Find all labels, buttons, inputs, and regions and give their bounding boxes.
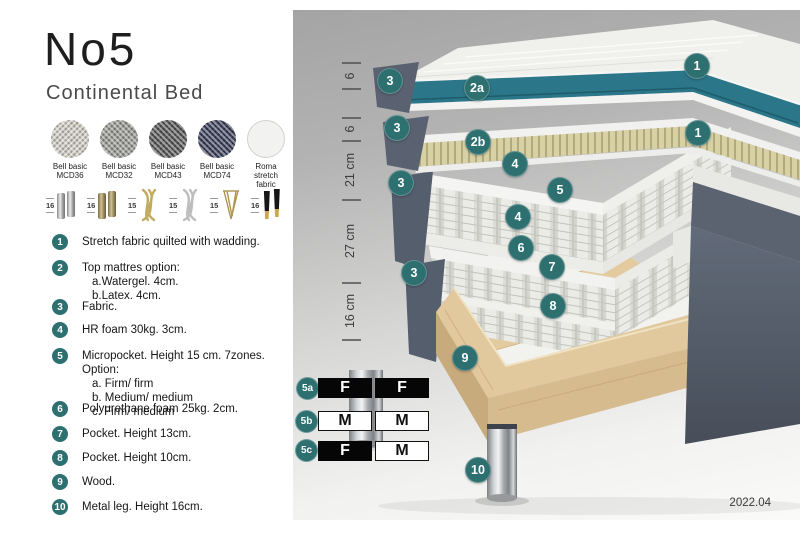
fabric-swatch-icon: [100, 120, 138, 158]
dim-label: 21 cm: [343, 153, 357, 187]
dim-label: 6: [343, 125, 357, 132]
product-subtitle: Continental Bed: [46, 82, 203, 105]
diagram-badge-10: 10: [465, 457, 491, 483]
leg-option: 15: [169, 185, 207, 225]
legend-number-badge: 7: [52, 426, 68, 442]
firmness-cell: F: [318, 378, 372, 398]
fabric-swatch-item: Bell basicMCD43: [146, 120, 190, 189]
diagram-badge-6: 6: [508, 235, 534, 261]
fabric-swatch-item: Bell basicMCD36: [48, 120, 92, 189]
diagram-badge-2a: 2a: [464, 75, 490, 101]
firmness-cell: M: [375, 441, 429, 461]
firmness-cell: F: [375, 378, 429, 398]
black-gold-tip-leg-icon: [260, 187, 284, 223]
legend-number-badge: 9: [52, 474, 68, 490]
legend-item-7: 7 Pocket. Height 13cm.: [52, 426, 294, 442]
firmness-cell: F: [318, 441, 372, 461]
legend-number-badge: 4: [52, 322, 68, 338]
diagram-badge-4: 4: [505, 204, 531, 230]
diagram-badge-4: 4: [502, 151, 528, 177]
leg-options: 16 16 15 15 15: [46, 185, 289, 225]
diagram-badge-2b: 2b: [465, 129, 491, 155]
metal-leg-front: [487, 424, 517, 502]
fabric-swatches: Bell basicMCD36 Bell basicMCD32 Bell bas…: [48, 120, 288, 189]
firmness-row-5b: M M: [318, 411, 429, 431]
diagram-badge-7: 7: [539, 254, 565, 280]
dim-label: 16 cm: [343, 294, 357, 328]
diagram-badge-3: 3: [401, 260, 427, 286]
firmness-row-badge-5a: 5a: [296, 377, 319, 400]
gold-twisted-leg-icon: [137, 187, 161, 223]
chrome-cylinder-leg-icon: [55, 187, 79, 223]
fabric-swatch-item: Bell basicMCD32: [97, 120, 141, 189]
legend-number-badge: 3: [52, 299, 68, 315]
leg-option: 16: [251, 185, 289, 225]
diagram-badge-3: 3: [377, 68, 403, 94]
legend-number-badge: 1: [52, 234, 68, 250]
legend-item-3: 3 Fabric.: [52, 299, 294, 315]
fabric-swatch-icon: [247, 120, 285, 158]
version-label: 2022.04: [701, 497, 771, 509]
legend-item-1: 1 Stretch fabric quilted with wadding.: [52, 234, 294, 250]
latex-layer: [383, 116, 800, 187]
fabric-swatch-label: Bell basicMCD43: [151, 162, 185, 180]
diagram-badge-1: 1: [685, 120, 711, 146]
legend-item-8: 8 Pocket. Height 10cm.: [52, 450, 294, 466]
firmness-cell: M: [375, 411, 429, 431]
infographic-page: No5 Continental Bed Bell basicMCD36 Bell…: [0, 0, 800, 533]
legend-number-badge: 6: [52, 401, 68, 417]
fabric-swatch-label: Bell basicMCD36: [53, 162, 87, 180]
legend-number-badge: 10: [52, 499, 68, 515]
firmness-row-5a: F F: [318, 378, 429, 398]
dim-label: 27 cm: [343, 224, 357, 258]
fabric-swatch-item: Romastretch fabric: [244, 120, 288, 189]
diagram-badge-3: 3: [388, 170, 414, 196]
leg-option: 16: [46, 185, 84, 225]
firmness-row-5c: F M: [318, 441, 429, 461]
dim-label: 6: [343, 72, 357, 79]
legend-item-2: 2 Top mattres option:a.Watergel. 4cm.b.L…: [52, 260, 294, 303]
fabric-swatch-label: Bell basicMCD32: [102, 162, 136, 180]
silver-twisted-leg-icon: [178, 187, 202, 223]
firmness-row-badge-5b: 5b: [295, 410, 318, 433]
legend-number-badge: 5: [52, 348, 68, 364]
leg-option: 16: [87, 185, 125, 225]
legend-item-10: 10 Metal leg. Height 16cm.: [52, 499, 294, 515]
legend-item-6: 6 Polyurethane foam 25kg. 2cm.: [52, 401, 294, 417]
top-mattress-layer: [373, 20, 800, 137]
diagram-badge-9: 9: [452, 345, 478, 371]
fabric-swatch-icon: [51, 120, 89, 158]
legend-number-badge: 2: [52, 260, 68, 276]
diagram-badge-3: 3: [384, 115, 410, 141]
fabric-swatch-icon: [149, 120, 187, 158]
fabric-swatch-icon: [198, 120, 236, 158]
firmness-row-badge-5c: 5c: [295, 439, 318, 462]
leg-option: 15: [210, 185, 248, 225]
brass-cylinder-leg-icon: [96, 187, 120, 223]
fabric-swatch-label: Bell basicMCD74: [200, 162, 234, 180]
legend-number-badge: 8: [52, 450, 68, 466]
diagram-badge-5: 5: [547, 177, 573, 203]
product-title: No5: [44, 22, 137, 76]
gold-hairpin-leg-icon: [219, 187, 243, 223]
diagram-badge-1: 1: [684, 53, 710, 79]
leg-option: 15: [128, 185, 166, 225]
firmness-cell: M: [318, 411, 372, 431]
fabric-swatch-item: Bell basicMCD74: [195, 120, 239, 189]
legend-item-9: 9 Wood.: [52, 474, 294, 490]
diagram-badge-8: 8: [540, 293, 566, 319]
legend-item-4: 4 HR foam 30kg. 3cm.: [52, 322, 294, 338]
bed-cutaway-diagram: 6 6 21 cm 27 cm 16 cm 3 2a 1 3 2b 1 4 5 …: [293, 10, 800, 520]
side-fabric-panel: [673, 226, 800, 444]
